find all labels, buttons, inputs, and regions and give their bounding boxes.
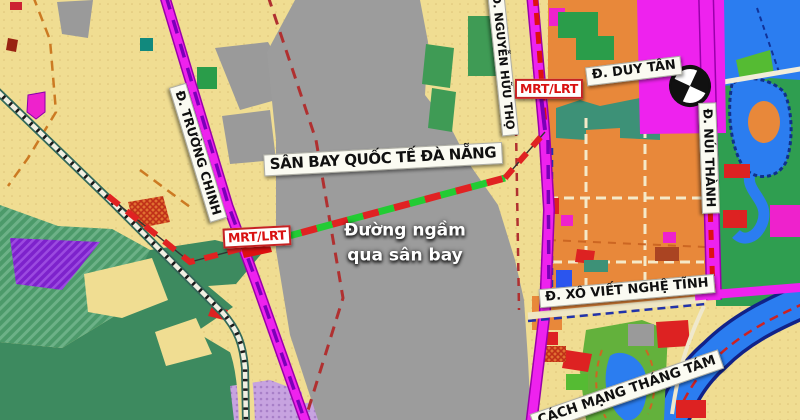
- tunnel-annotation-line1: Đường ngầm: [344, 218, 466, 243]
- street-label-nui-thanh: Đ. NÚI THÀNH: [698, 102, 720, 213]
- tunnel-annotation-line2: qua sân bay: [344, 243, 466, 268]
- mrt-lrt-badge-west: MRT/LRT: [222, 225, 291, 249]
- mrt-lrt-badge-east: MRT/LRT: [515, 79, 583, 99]
- planning-map: SÂN BAY QUỐC TẾ ĐÀ NẴNG Đ. TRƯỜNG CHINH …: [0, 0, 800, 420]
- tunnel-annotation: Đường ngầm qua sân bay: [344, 218, 466, 267]
